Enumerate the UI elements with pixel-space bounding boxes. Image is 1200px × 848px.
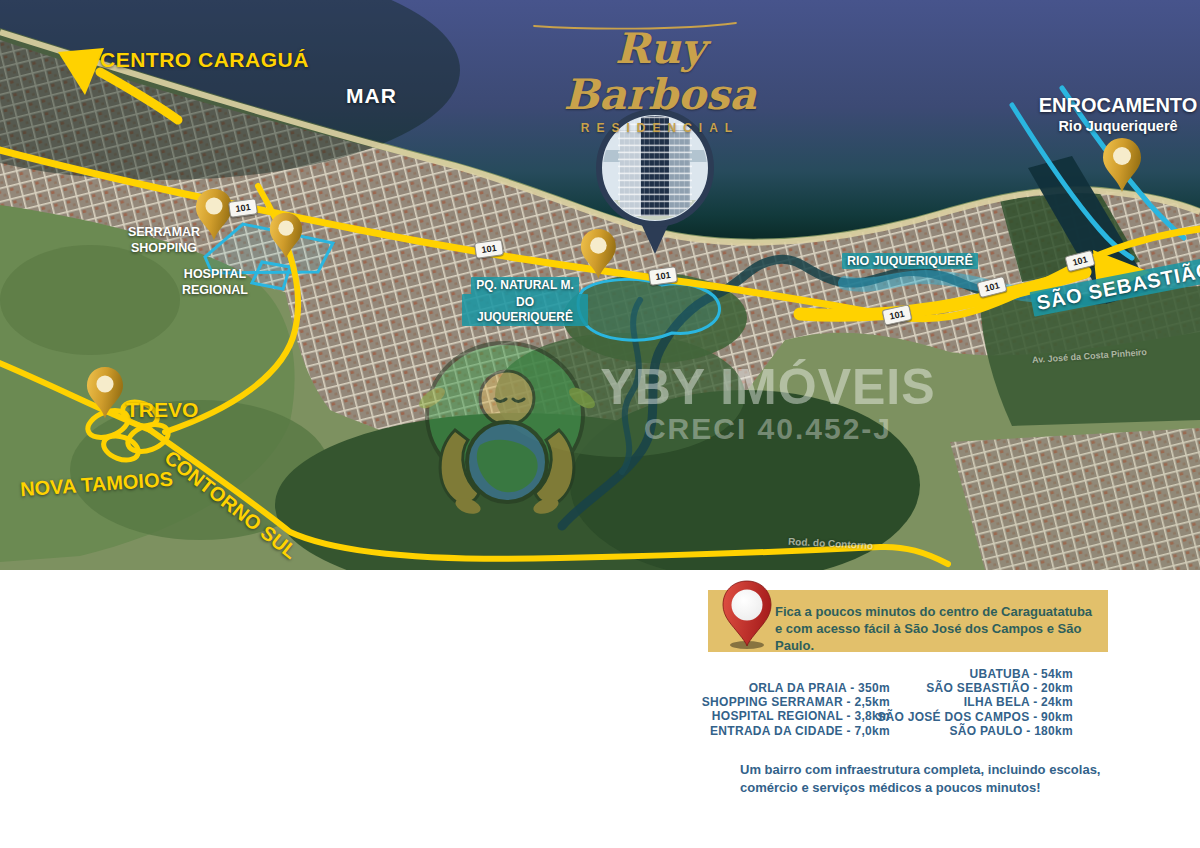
sea-label: MAR xyxy=(346,84,397,108)
watermark-brand: YBY IMÓVEIS xyxy=(548,362,988,412)
hospital-line1: HOSPITAL xyxy=(184,267,246,281)
distance-item: SÃO JOSÉ DOS CAMPOS - 90km xyxy=(863,710,1073,724)
trevo-label: TREVO xyxy=(126,398,198,422)
parque-line1: PQ. NATURAL M. xyxy=(471,277,579,294)
centro-caragua-label: CENTRO CARAGUÁ xyxy=(100,48,309,72)
parque-line2: DO JUQUERIQUERÊ xyxy=(462,294,588,326)
distance-item: ILHA BELA - 24km xyxy=(863,695,1073,709)
distance-list-left: ORLA DA PRAIA - 350m SHOPPING SERRAMAR -… xyxy=(680,681,890,738)
info-panel: Fica a poucos minutos do centro de Carag… xyxy=(0,570,1200,848)
description-line2: comércio e serviços médicos a poucos min… xyxy=(740,779,1190,797)
rio-text: RIO JUQUERIQUERÊ xyxy=(842,253,978,269)
serramar-line2: SHOPPING xyxy=(131,241,197,255)
red-pin-icon xyxy=(720,579,774,651)
serramar-shopping-label: SERRAMAR SHOPPING xyxy=(118,224,210,257)
distance-item: SHOPPING SERRAMAR - 2,5km xyxy=(680,695,890,709)
project-logo: Ruy Barbosa RESIDENCIAL xyxy=(530,26,790,135)
satellite-map: CENTRO CARAGUÁ MAR Ruy Barbosa RESIDENCI… xyxy=(0,0,1200,570)
callout-line2: e com acesso fácil à São José dos Campos… xyxy=(775,620,1108,654)
location-map-poster: CENTRO CARAGUÁ MAR Ruy Barbosa RESIDENCI… xyxy=(0,0,1200,848)
highlight-callout: Fica a poucos minutos do centro de Carag… xyxy=(708,590,1108,652)
distance-item: HOSPITAL REGIONAL - 3,8km xyxy=(680,709,890,723)
enrocamento-label: ENROCAMENTO Rio Juqueriquerê xyxy=(1036,94,1200,134)
enrocamento-title: ENROCAMENTO xyxy=(1036,94,1200,117)
park-outline xyxy=(578,279,719,340)
hospital-regional-label: HOSPITAL REGIONAL xyxy=(166,266,264,299)
hospital-line2: REGIONAL xyxy=(182,283,248,297)
logo-subtitle: RESIDENCIAL xyxy=(530,121,790,135)
distance-list-right: UBATUBA - 54km SÃO SEBASTIÃO - 20km ILHA… xyxy=(863,667,1073,738)
neighborhood-description: Um bairro com infraestrutura completa, i… xyxy=(740,761,1190,796)
distance-item: SÃO PAULO - 180km xyxy=(863,724,1073,738)
logo-flourish xyxy=(530,22,740,30)
distance-item: SÃO SEBASTIÃO - 20km xyxy=(863,681,1073,695)
serramar-line1: SERRAMAR xyxy=(128,225,200,239)
enrocamento-subtitle: Rio Juqueriquerê xyxy=(1036,118,1200,134)
distance-item: ENTRADA DA CIDADE - 7,0km xyxy=(680,724,890,738)
callout-line1: Fica a poucos minutos do centro de Carag… xyxy=(775,603,1108,620)
watermark-creci: CRECI 40.452-J xyxy=(548,414,988,444)
callout-text: Fica a poucos minutos do centro de Carag… xyxy=(775,603,1108,654)
distance-item: ORLA DA PRAIA - 350m xyxy=(680,681,890,695)
rio-juqueriquere-label: RIO JUQUERIQUERÊ xyxy=(842,253,978,269)
parque-natural-label: PQ. NATURAL M. DO JUQUERIQUERÊ xyxy=(462,277,588,326)
distance-item: UBATUBA - 54km xyxy=(863,667,1073,681)
description-line1: Um bairro com infraestrutura completa, i… xyxy=(740,761,1190,779)
logo-name: Ruy Barbosa xyxy=(530,26,790,118)
